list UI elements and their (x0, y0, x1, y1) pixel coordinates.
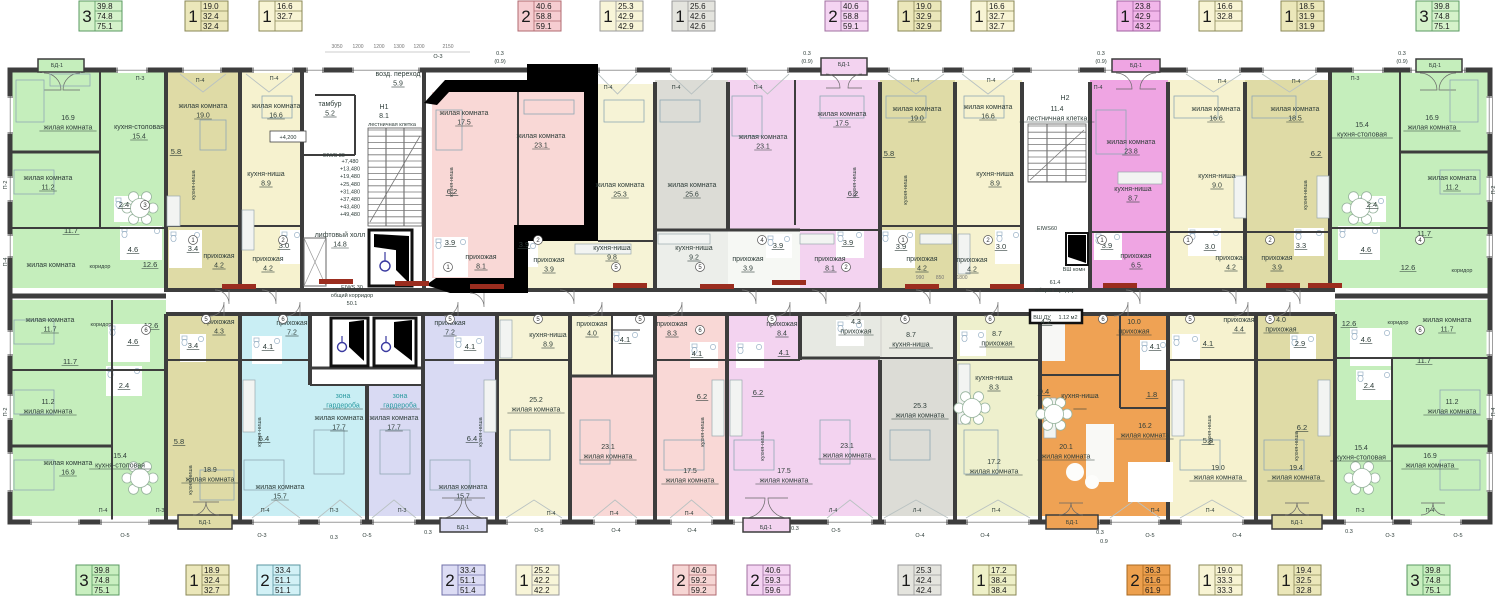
svg-text:4.4: 4.4 (1234, 327, 1244, 334)
svg-text:5.2: 5.2 (325, 111, 335, 118)
svg-text:8.3: 8.3 (989, 385, 999, 392)
svg-text:возд. переход: возд. переход (375, 71, 420, 78)
svg-text:П-4: П-4 (261, 508, 270, 514)
svg-text:8.3: 8.3 (667, 331, 677, 338)
svg-text:EIWS 30: EIWS 30 (341, 285, 363, 291)
svg-text:лифтовый холл: лифтовый холл (315, 231, 366, 239)
svg-text:+19,480: +19,480 (340, 174, 360, 180)
svg-text:прихожая: прихожая (981, 341, 1012, 348)
svg-text:П-3: П-3 (136, 76, 145, 82)
svg-text:51.1: 51.1 (275, 576, 291, 585)
svg-text:П-4: П-4 (1426, 508, 1435, 514)
svg-text:15.4: 15.4 (132, 134, 146, 141)
svg-text:БД-1: БД-1 (1066, 520, 1078, 526)
svg-text:0.3: 0.3 (1097, 51, 1105, 57)
svg-text:74.8: 74.8 (97, 12, 113, 21)
svg-text:(0.9): (0.9) (494, 59, 505, 65)
svg-text:жилая комната: жилая комната (512, 407, 561, 414)
svg-text:990: 990 (916, 275, 925, 281)
svg-text:8.7: 8.7 (1128, 196, 1138, 203)
svg-text:П-4: П-4 (270, 76, 279, 82)
svg-text:12.6: 12.6 (143, 260, 158, 269)
svg-text:8.9: 8.9 (990, 181, 1000, 188)
svg-text:прихожая: прихожая (814, 256, 845, 263)
svg-text:25.3: 25.3 (618, 2, 634, 11)
svg-text:коридор: коридор (91, 322, 112, 328)
svg-text:0.9: 0.9 (1100, 539, 1108, 545)
svg-text:5.8: 5.8 (171, 147, 181, 156)
svg-text:38.4: 38.4 (991, 586, 1007, 595)
svg-text:25.3: 25.3 (913, 403, 927, 410)
svg-text:42.6: 42.6 (690, 22, 706, 31)
svg-text:зона: зона (336, 393, 351, 400)
svg-text:16.6: 16.6 (981, 114, 995, 121)
svg-text:БД-1: БД-1 (457, 525, 469, 531)
svg-text:прихожая: прихожая (906, 256, 937, 263)
svg-text:1.12 м2: 1.12 м2 (1058, 315, 1077, 321)
svg-text:1: 1 (901, 571, 910, 590)
svg-text:жилая комната: жилая комната (44, 125, 93, 132)
svg-text:жилая комната: жилая комната (1408, 125, 1457, 132)
svg-text:23.1: 23.1 (534, 143, 548, 150)
svg-text:4.1: 4.1 (1150, 342, 1160, 351)
svg-text:кухня-столовая: кухня-столовая (114, 124, 164, 131)
svg-text:прихожая: прихожая (533, 257, 564, 264)
svg-text:прихожая: прихожая (465, 254, 496, 261)
svg-text:40.6: 40.6 (765, 566, 781, 575)
svg-text:1: 1 (901, 7, 910, 26)
svg-text:1: 1 (1284, 7, 1293, 26)
svg-text:кухня-ниша: кухня-ниша (449, 166, 455, 196)
svg-text:жилая комната: жилая комната (666, 478, 715, 485)
svg-text:+49,480: +49,480 (340, 212, 360, 218)
svg-text:П-4: П-4 (1491, 408, 1497, 417)
svg-text:кухня-ниша: кухня-ниша (1294, 430, 1300, 460)
svg-text:3.9: 3.9 (1272, 265, 1282, 272)
svg-text:О-5: О-5 (831, 528, 840, 534)
svg-text:4.0: 4.0 (1276, 317, 1286, 324)
svg-text:прихожая: прихожая (1215, 255, 1246, 262)
svg-text:П-4: П-4 (610, 511, 619, 517)
svg-text:42.4: 42.4 (916, 586, 932, 595)
svg-text:жилая комната: жилая комната (896, 413, 945, 420)
svg-text:17.2: 17.2 (987, 459, 1001, 466)
svg-text:П-4: П-4 (1151, 508, 1160, 514)
svg-text:9.2: 9.2 (689, 255, 699, 262)
svg-text:3050: 3050 (331, 44, 342, 50)
svg-text:гардероба: гардероба (383, 402, 417, 410)
svg-text:3: 3 (79, 571, 88, 590)
svg-text:15.4: 15.4 (113, 453, 127, 460)
svg-text:О-3: О-3 (1385, 533, 1394, 539)
svg-text:+25,480: +25,480 (340, 182, 360, 188)
svg-text:2.9: 2.9 (1295, 339, 1305, 348)
svg-text:1300: 1300 (393, 44, 404, 50)
svg-text:4.1: 4.1 (465, 342, 475, 351)
svg-text:4.1: 4.1 (263, 342, 273, 351)
svg-text:17.7: 17.7 (387, 425, 401, 432)
svg-text:11.2: 11.2 (1445, 399, 1458, 406)
svg-text:2: 2 (521, 7, 530, 26)
svg-text:кухня-ниша: кухня-ниша (675, 245, 713, 252)
svg-text:75.1: 75.1 (1434, 22, 1450, 31)
svg-text:Н2: Н2 (1061, 95, 1070, 102)
svg-text:П-4: П-4 (992, 508, 1001, 514)
svg-text:жилая комната: жилая комната (970, 469, 1019, 476)
svg-text:42.6: 42.6 (690, 12, 706, 21)
svg-text:38.4: 38.4 (991, 576, 1007, 585)
svg-text:23.1: 23.1 (756, 144, 770, 151)
svg-text:жилая комната: жилая комната (760, 478, 809, 485)
svg-text:П-3: П-3 (1356, 508, 1365, 514)
svg-text:16.9: 16.9 (1425, 115, 1439, 122)
svg-text:БД-1: БД-1 (199, 520, 211, 526)
svg-text:14.8: 14.8 (333, 242, 347, 249)
svg-text:1: 1 (603, 7, 612, 26)
svg-text:жилая комната: жилая комната (739, 134, 788, 141)
svg-text:П-4: П-4 (547, 511, 556, 517)
svg-text:4.1: 4.1 (620, 335, 630, 344)
svg-text:39.8: 39.8 (1434, 2, 1450, 11)
svg-text:жилая комната: жилая комната (439, 484, 488, 491)
svg-text:2.4: 2.4 (119, 200, 129, 209)
svg-text:жилая комната: жилая комната (1121, 433, 1170, 440)
svg-text:1200: 1200 (352, 44, 363, 50)
svg-text:74.8: 74.8 (1434, 12, 1450, 21)
svg-text:4.2: 4.2 (214, 263, 224, 270)
svg-text:43.2: 43.2 (1135, 22, 1151, 31)
svg-text:4.3: 4.3 (214, 329, 224, 336)
svg-text:кухня-столовая: кухня-столовая (1336, 455, 1386, 462)
svg-text:8.7: 8.7 (906, 332, 916, 339)
svg-text:25.3: 25.3 (613, 192, 627, 199)
svg-text:жилая комната: жилая комната (370, 415, 419, 422)
svg-text:П-4: П-4 (3, 258, 9, 267)
svg-text:жилая комната: жилая комната (1107, 139, 1156, 146)
svg-text:прихожая: прихожая (1261, 255, 1292, 262)
svg-text:3.9: 3.9 (743, 266, 753, 273)
svg-text:11.2: 11.2 (41, 399, 54, 406)
svg-text:42.4: 42.4 (916, 576, 932, 585)
svg-text:3.9: 3.9 (445, 238, 455, 247)
svg-text:32.7: 32.7 (277, 12, 293, 21)
svg-text:23.1: 23.1 (601, 444, 615, 451)
svg-text:Н1: Н1 (380, 104, 389, 111)
svg-text:жилая комната: жилая комната (179, 103, 228, 110)
svg-text:кухня-столовая: кухня-столовая (1337, 132, 1387, 139)
svg-text:общий корридор: общий корридор (331, 292, 373, 299)
svg-text:16.9: 16.9 (61, 470, 75, 477)
svg-text:кухня-ниша: кухня-ниша (593, 245, 631, 252)
svg-text:16.6: 16.6 (1217, 2, 1233, 11)
svg-text:прихожая: прихожая (840, 329, 871, 336)
svg-text:1: 1 (1202, 571, 1211, 590)
svg-text:6.5: 6.5 (1131, 263, 1141, 270)
svg-text:33.3: 33.3 (1217, 586, 1233, 595)
svg-text:БД-1: БД-1 (1291, 520, 1303, 526)
svg-text:74.8: 74.8 (1425, 576, 1441, 585)
svg-text:18.9: 18.9 (203, 467, 217, 474)
svg-text:0.3: 0.3 (1345, 529, 1353, 535)
svg-text:17.2: 17.2 (991, 566, 1007, 575)
svg-text:16.6: 16.6 (1209, 116, 1223, 123)
svg-text:кухня-ниша: кухня-ниша (760, 430, 766, 460)
svg-text:О-5: О-5 (1453, 533, 1462, 539)
svg-text:59.1: 59.1 (536, 22, 552, 31)
svg-text:42.2: 42.2 (534, 586, 550, 595)
svg-text:БД-1: БД-1 (1429, 63, 1441, 69)
svg-text:17.5: 17.5 (683, 468, 697, 475)
svg-text:19.0: 19.0 (916, 2, 932, 11)
svg-text:16.6: 16.6 (989, 2, 1005, 11)
svg-text:7.2: 7.2 (287, 330, 297, 337)
svg-text:+37,480: +37,480 (340, 197, 360, 203)
svg-text:0.3: 0.3 (330, 535, 338, 541)
svg-text:23.1: 23.1 (840, 443, 854, 450)
svg-text:8.4: 8.4 (777, 331, 787, 338)
svg-text:7.2: 7.2 (445, 330, 455, 337)
svg-text:БД-1: БД-1 (838, 62, 850, 68)
svg-text:61.9: 61.9 (1145, 586, 1161, 595)
svg-text:кухня-ниша: кухня-ниша (529, 332, 567, 339)
svg-text:61.6: 61.6 (1145, 576, 1161, 585)
svg-text:кухня-ниша: кухня-ниша (1303, 179, 1309, 209)
svg-text:П-4: П-4 (99, 508, 108, 514)
svg-text:32.7: 32.7 (989, 12, 1005, 21)
svg-text:15.4: 15.4 (1355, 122, 1369, 129)
svg-text:0.3: 0.3 (1096, 530, 1104, 536)
svg-text:32.9: 32.9 (916, 22, 932, 31)
svg-text:кухня-ниша: кухня-ниша (976, 171, 1014, 178)
svg-text:19.0: 19.0 (910, 116, 924, 123)
svg-text:11.7: 11.7 (63, 357, 77, 366)
svg-text:жилая комната: жилая комната (823, 453, 872, 460)
svg-text:11.2: 11.2 (41, 185, 54, 192)
svg-text:О-4: О-4 (1232, 533, 1241, 539)
svg-text:П-4: П-4 (754, 85, 763, 91)
svg-text:19.0: 19.0 (1211, 465, 1225, 472)
svg-text:кухня-ниша: кухня-ниша (1114, 186, 1152, 193)
svg-text:42.9: 42.9 (618, 12, 634, 21)
svg-text:51.1: 51.1 (275, 586, 291, 595)
svg-text:23.8: 23.8 (1135, 2, 1151, 11)
svg-text:18.9: 18.9 (204, 566, 220, 575)
svg-text:58.8: 58.8 (843, 12, 859, 21)
svg-text:4.6: 4.6 (1361, 245, 1371, 254)
svg-text:прихожая: прихожая (252, 256, 283, 263)
svg-text:3.4: 3.4 (188, 244, 198, 253)
svg-text:18.5: 18.5 (1299, 2, 1315, 11)
svg-text:39.8: 39.8 (97, 2, 113, 11)
svg-text:кухня-ниша: кухня-ниша (1198, 173, 1236, 180)
svg-text:32.7: 32.7 (989, 22, 1005, 31)
svg-text:5.8: 5.8 (884, 149, 894, 158)
svg-text:3.9: 3.9 (773, 241, 783, 250)
svg-text:15.7: 15.7 (273, 494, 287, 501)
svg-text:жилая комната: жилая комната (1428, 409, 1477, 416)
svg-text:жилая комната: жилая комната (1271, 106, 1320, 113)
svg-text:75.1: 75.1 (1425, 586, 1441, 595)
svg-text:1: 1 (974, 7, 983, 26)
svg-text:10.0: 10.0 (1127, 319, 1141, 326)
svg-text:жилая комната: жилая комната (27, 262, 76, 269)
svg-text:3.9: 3.9 (519, 240, 529, 249)
svg-text:4.2: 4.2 (1226, 265, 1236, 272)
svg-text:58.8: 58.8 (536, 12, 552, 21)
svg-text:ВШ комн: ВШ комн (1063, 267, 1086, 273)
svg-text:прихожая: прихожая (203, 253, 234, 260)
svg-text:1.8: 1.8 (1147, 390, 1157, 399)
svg-text:жилая комната: жилая комната (315, 415, 364, 422)
svg-text:4.6: 4.6 (128, 245, 138, 254)
svg-text:П-4: П-4 (987, 78, 996, 84)
svg-text:жилая комната: жилая комната (24, 409, 73, 416)
svg-text:18.5: 18.5 (1288, 116, 1302, 123)
svg-text:32.5: 32.5 (1296, 576, 1312, 585)
svg-text:59.2: 59.2 (691, 586, 707, 595)
svg-text:19.0: 19.0 (196, 113, 210, 120)
svg-text:О-5: О-5 (1145, 533, 1154, 539)
svg-text:прихожая: прихожая (1265, 327, 1296, 334)
svg-text:1: 1 (976, 571, 985, 590)
svg-text:6.4: 6.4 (467, 434, 477, 443)
svg-text:20.1: 20.1 (1059, 444, 1073, 451)
svg-text:кухня-ниша: кухня-ниша (478, 416, 484, 446)
svg-text:коридор: коридор (1452, 268, 1473, 274)
svg-text:17.5: 17.5 (777, 468, 791, 475)
svg-text:П-4: П-4 (911, 78, 920, 84)
svg-text:кухня-ниша: кухня-ниша (257, 416, 263, 446)
svg-text:лестничная клетка: лестничная клетка (1027, 116, 1088, 123)
svg-text:23.8: 23.8 (1124, 149, 1138, 156)
svg-text:П-2: П-2 (3, 181, 9, 190)
svg-text:1800: 1800 (956, 275, 967, 281)
svg-text:жилая комната: жилая комната (1042, 454, 1091, 461)
svg-text:П-3: П-3 (1351, 76, 1360, 82)
svg-text:П-4: П-4 (196, 78, 205, 84)
svg-text:59.3: 59.3 (765, 576, 781, 585)
svg-text:3.9: 3.9 (544, 267, 554, 274)
svg-text:жилая комната: жилая комната (584, 454, 633, 461)
svg-text:3.4: 3.4 (188, 341, 198, 350)
svg-text:1: 1 (519, 571, 528, 590)
svg-text:1: 1 (1202, 7, 1211, 26)
svg-text:6.2: 6.2 (1297, 423, 1307, 432)
svg-text:32.9: 32.9 (916, 12, 932, 21)
svg-text:жилая комната: жилая комната (1194, 475, 1243, 482)
svg-text:2: 2 (1130, 571, 1139, 590)
svg-text:8.1: 8.1 (379, 113, 389, 120)
svg-text:жилая комната: жилая комната (893, 106, 942, 113)
svg-text:П-3: П-3 (156, 508, 165, 514)
svg-text:9.0: 9.0 (1212, 183, 1222, 190)
svg-text:19.4: 19.4 (1296, 566, 1312, 575)
svg-text:П-4: П-4 (1206, 508, 1215, 514)
svg-text:25.3: 25.3 (916, 566, 932, 575)
svg-text:2.4: 2.4 (119, 381, 129, 390)
svg-text:жилая комната: жилая комната (668, 182, 717, 189)
svg-text:33.4: 33.4 (275, 566, 291, 575)
svg-text:1200: 1200 (373, 44, 384, 50)
svg-text:2: 2 (828, 7, 837, 26)
svg-text:17.5: 17.5 (835, 121, 849, 128)
svg-text:3.9: 3.9 (843, 238, 853, 247)
svg-text:П-2: П-2 (1491, 186, 1497, 195)
svg-text:2150: 2150 (442, 44, 453, 50)
svg-text:ЕIWS60: ЕIWS60 (1037, 226, 1057, 232)
svg-text:33.3: 33.3 (1217, 576, 1233, 585)
svg-text:3: 3 (1410, 571, 1419, 590)
svg-text:гардероба: гардероба (326, 402, 360, 410)
svg-text:32.4: 32.4 (204, 576, 220, 585)
svg-text:11.7: 11.7 (64, 226, 78, 235)
svg-text:15.7: 15.7 (456, 494, 470, 501)
svg-text:прихожая: прихожая (732, 256, 763, 263)
svg-text:59.2: 59.2 (691, 576, 707, 585)
svg-text:8.9: 8.9 (543, 342, 553, 349)
svg-text:прихожая: прихожая (576, 321, 607, 328)
svg-text:4.0: 4.0 (587, 331, 597, 338)
svg-text:О-4: О-4 (980, 533, 989, 539)
svg-text:0.3: 0.3 (496, 51, 504, 57)
svg-text:жилая комната: жилая комната (1406, 463, 1455, 470)
svg-text:кухня-ниша: кухня-ниша (191, 169, 197, 199)
svg-text:прихожая: прихожая (656, 321, 687, 328)
svg-text:59.6: 59.6 (765, 586, 781, 595)
svg-text:1: 1 (675, 7, 684, 26)
svg-text:12.6: 12.6 (1401, 263, 1416, 272)
svg-text:(0.9): (0.9) (1095, 59, 1106, 65)
svg-text:25.2: 25.2 (529, 397, 543, 404)
svg-text:жилая комната: жилая комната (517, 133, 566, 140)
svg-text:жилая комната: жилая комната (1428, 175, 1477, 182)
svg-text:П-3: П-3 (330, 508, 339, 514)
svg-text:жилая комната: жилая комната (964, 104, 1013, 111)
svg-text:БД-1: БД-1 (760, 525, 772, 531)
svg-text:9.4: 9.4 (1039, 387, 1049, 396)
svg-text:19.4: 19.4 (1289, 465, 1303, 472)
svg-text:П-2: П-2 (3, 408, 9, 417)
svg-text:П-4: П-4 (672, 85, 681, 91)
svg-text:75.1: 75.1 (97, 22, 113, 31)
svg-text:850: 850 (936, 275, 945, 281)
svg-text:кухня-ниша: кухня-ниша (1207, 414, 1213, 444)
svg-text:59.1: 59.1 (843, 22, 859, 31)
svg-text:прихожая: прихожая (1223, 317, 1254, 324)
svg-text:1: 1 (189, 571, 198, 590)
svg-text:6.2: 6.2 (697, 392, 707, 401)
svg-text:О-4: О-4 (611, 528, 620, 534)
svg-text:8.1: 8.1 (825, 266, 835, 273)
svg-text:кухня-ниша: кухня-ниша (903, 174, 909, 204)
svg-text:+4,200: +4,200 (280, 135, 297, 141)
svg-text:75.1: 75.1 (94, 586, 110, 595)
svg-text:0.3: 0.3 (1398, 51, 1406, 57)
svg-text:4.3: 4.3 (851, 319, 861, 326)
svg-text:1: 1 (1120, 7, 1129, 26)
svg-text:жилая комната: жилая комната (1192, 106, 1241, 113)
svg-text:5.9: 5.9 (393, 81, 403, 88)
svg-text:+13,480: +13,480 (340, 167, 360, 173)
svg-text:8.9: 8.9 (261, 181, 271, 188)
svg-text:4.2: 4.2 (917, 266, 927, 273)
svg-text:33.4: 33.4 (460, 566, 476, 575)
svg-text:кухня-ниша: кухня-ниша (1061, 393, 1099, 400)
svg-text:11.4: 11.4 (1050, 106, 1063, 113)
svg-text:БД-1: БД-1 (51, 63, 63, 69)
svg-text:О-4: О-4 (915, 533, 924, 539)
svg-text:(0.9): (0.9) (801, 59, 812, 65)
